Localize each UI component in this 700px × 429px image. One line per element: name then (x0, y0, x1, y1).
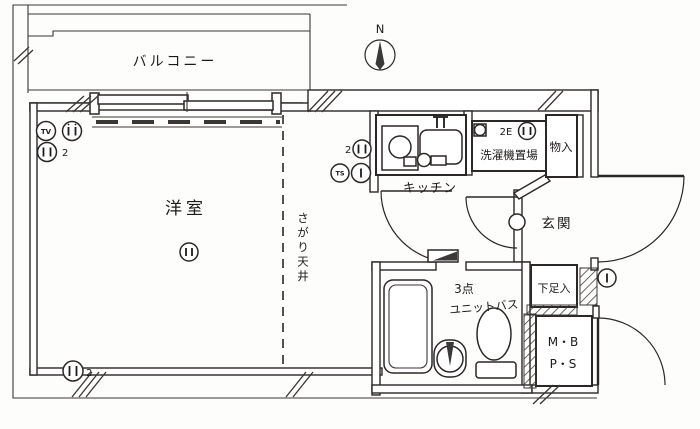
lowered-ceiling-label: さがり天井 (297, 211, 309, 283)
outlet-icon (63, 122, 82, 141)
laundry-label: 洗濯機置場 (480, 148, 538, 162)
meter-box (536, 316, 592, 386)
floor-plan-page: N バルコニー 洋室 さがり天井 キッチン 洗濯機置場 2E 物入 玄関 下足入… (0, 0, 700, 429)
meter-box-label: M・B (548, 335, 579, 349)
entrance-label: 玄関 (542, 215, 573, 232)
mb-door (598, 318, 665, 385)
outlet-count-topleft: 2 (62, 148, 68, 159)
pipe-space-label: P・S (550, 357, 577, 371)
wall-bath-west (372, 262, 380, 395)
hall-doors (381, 191, 517, 262)
outlet-count-kitchen: 2 (345, 145, 351, 156)
outlet-count-bottomleft: 2 (86, 368, 92, 379)
compass: N (365, 22, 395, 70)
toilet-tank (476, 362, 516, 378)
window-sash-left (98, 95, 188, 104)
floor-plan-drawing: N バルコニー 洋室 さがり天井 キッチン 洗濯機置場 2E 物入 玄関 下足入… (0, 0, 700, 429)
entrance-door-swing (598, 176, 684, 262)
ts-outlet-label: TS (335, 170, 344, 178)
outlet-ii-icon-bottomleft (63, 361, 83, 381)
ceiling-light-icon (180, 243, 198, 261)
storage-label: 物入 (550, 140, 573, 154)
unit-bath-label-1: 3点 (454, 282, 474, 296)
bathtub (384, 280, 432, 373)
unit-bath-label-2: ユニットバス (449, 297, 519, 317)
wall-east-mb-post (593, 306, 599, 318)
shoe-cabinet-label: 下足入 (538, 282, 571, 295)
entrance-door (598, 176, 684, 262)
wall-east-upper (591, 90, 598, 177)
laundry-outlet-label: 2E (500, 127, 513, 138)
wall-bath-north-left (372, 262, 436, 270)
wall-bath-south (372, 385, 532, 393)
wall-bath-north-right (466, 262, 530, 270)
stove-burner-icon (389, 136, 411, 158)
wall-entrance-diagonal (514, 175, 550, 199)
wall-north-mid (278, 103, 312, 111)
balcony-label: バルコニー (133, 54, 218, 70)
window-sash-right (184, 101, 273, 110)
toilet-bowl (477, 308, 511, 360)
tv-outlet-label: TV (41, 128, 52, 136)
outlet-ii-icon-laundry (519, 123, 536, 140)
unit-bath (384, 280, 516, 378)
outlet-ii-icon-kitchen (353, 140, 371, 158)
kitchen-counter (376, 115, 466, 175)
compass-north-label: N (376, 22, 385, 36)
outlet-ii-icon-topleft (38, 143, 57, 162)
laundry-faucet-icon (475, 125, 486, 136)
mb-door-swing (598, 318, 665, 385)
entrance-knob-icon (509, 214, 525, 230)
living-room-label: 洋室 (165, 199, 207, 219)
compass-needle-icon (376, 41, 385, 70)
kitchen-label: キッチン (403, 180, 457, 195)
